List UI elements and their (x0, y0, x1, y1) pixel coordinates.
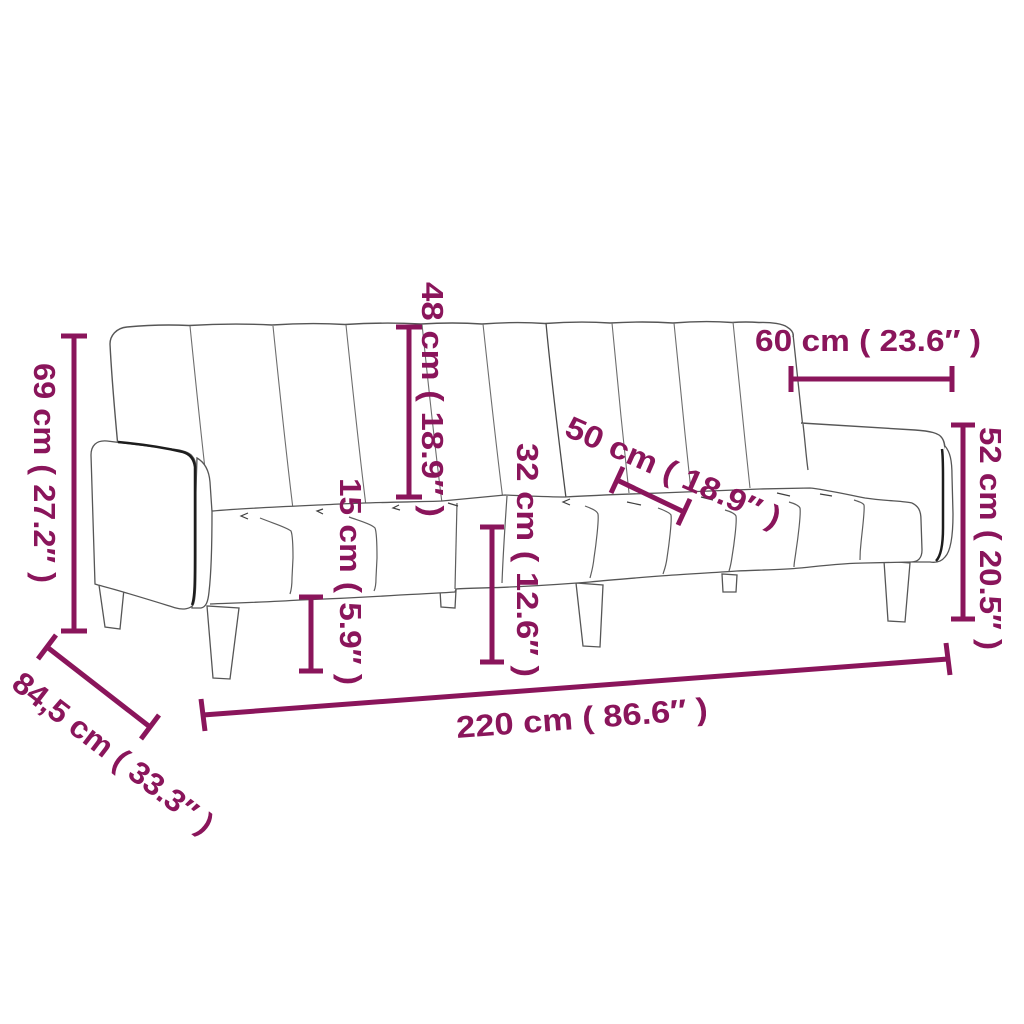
svg-text:60 cm ( 23.6″ ): 60 cm ( 23.6″ ) (755, 323, 981, 358)
svg-text:52 cm ( 20.5″ ): 52 cm ( 20.5″ ) (973, 427, 1008, 650)
svg-text:15 cm ( 5.9″ ): 15 cm ( 5.9″ ) (333, 478, 368, 685)
svg-text:48 cm ( 18.9″ ): 48 cm ( 18.9″ ) (415, 282, 450, 517)
svg-text:69 cm ( 27.2″ ): 69 cm ( 27.2″ ) (27, 363, 62, 583)
svg-text:32 cm ( 12.6″ ): 32 cm ( 12.6″ ) (510, 443, 545, 677)
